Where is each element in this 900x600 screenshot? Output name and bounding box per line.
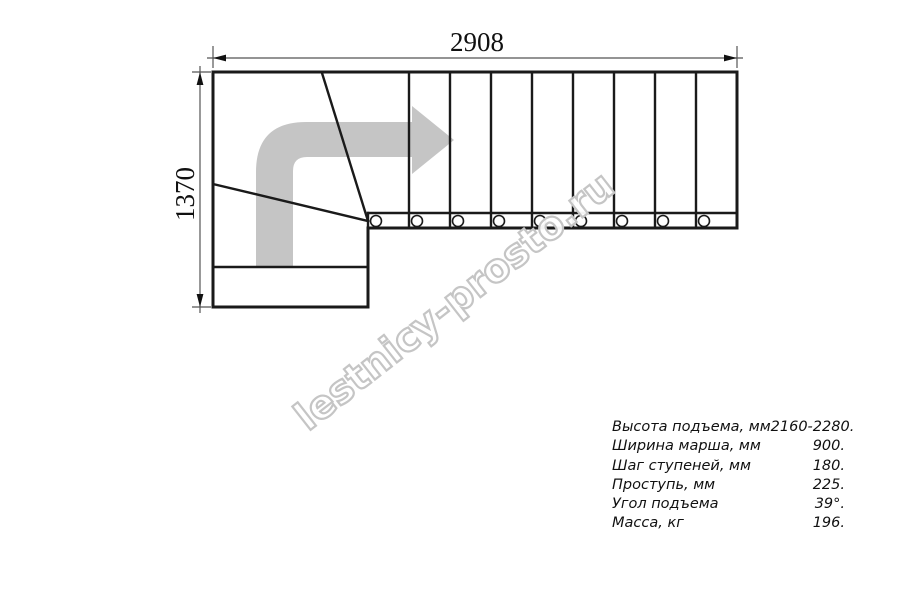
dimension-width-label: 2908 [450,27,504,57]
dimension-width: 2908 [207,27,743,68]
spec-row: Шаг ступеней, мм 180. [612,457,845,476]
dim-arrow-down [197,294,204,307]
spec-table: Высота подъема, мм 2160-2280. Ширина мар… [612,418,845,534]
spec-row: Проступь, мм 225. [612,476,845,495]
spec-row: Ширина марша, мм 900. [612,437,845,456]
dim-arrow-up [197,72,204,85]
spec-label: Проступь, мм [612,476,715,495]
spec-row: Масса, кг 196. [612,514,845,533]
spec-value: 2160-2280. [771,418,855,437]
spec-value: 39°. [815,495,845,514]
dimension-height-label: 1370 [170,167,200,221]
spec-row: Высота подъема, мм 2160-2280. [612,418,845,437]
dimension-height: 1370 [170,66,211,313]
stair-plan-drawing: 2908 1370 lestnicy-prosto.ru Высота подъ… [0,0,900,600]
spec-label: Масса, кг [612,514,684,533]
watermark-text: lestnicy-prosto.ru [286,163,623,440]
spec-value: 225. [813,476,845,495]
spec-label: Ширина марша, мм [612,437,761,456]
spec-value: 900. [813,437,845,456]
spec-label: Шаг ступеней, мм [612,457,751,476]
spec-value: 180. [813,457,845,476]
spec-value: 196. [813,514,845,533]
direction-arrow [256,106,454,266]
spec-label: Высота подъема, мм [612,418,771,437]
dim-arrow-right [724,55,737,62]
dim-arrow-left [213,55,226,62]
spec-row: Угол подъема 39°. [612,495,845,514]
spec-label: Угол подъема [612,495,719,514]
